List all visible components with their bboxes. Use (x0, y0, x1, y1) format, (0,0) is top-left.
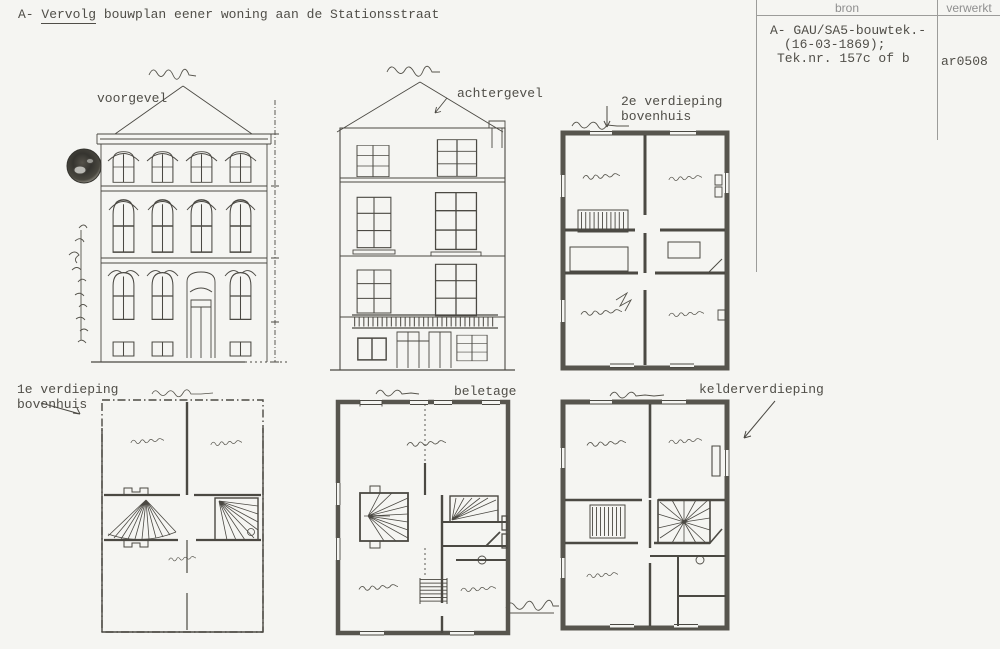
closet (570, 247, 628, 271)
sheet-title: A- Vervolg bouwplan eener woning aan de … (18, 7, 439, 22)
top-floor-windows (108, 152, 256, 183)
straight-staircase (590, 505, 625, 538)
winder-staircase (215, 498, 258, 540)
bron-entry-line3: Tek.nr. 157c of b (777, 51, 910, 66)
inner-horizontal-walls (442, 522, 506, 560)
outer-walls-solid (102, 428, 263, 632)
column-header-bron: bron (757, 1, 937, 15)
outer-walls (338, 402, 508, 633)
table-header-rule (756, 15, 1000, 16)
bron-entry-line1: A- GAU/SA5-bouwtek.- (770, 23, 926, 38)
handwritten-plan-caption (610, 392, 664, 398)
service-staircase (450, 496, 498, 522)
ground-floor-openings (358, 332, 487, 368)
label-arrow (435, 98, 447, 113)
outer-walls (563, 402, 727, 628)
title-prefix: A- (18, 7, 41, 22)
roof-gable-lines (115, 86, 252, 134)
column-header-verwerkt: verwerkt (938, 1, 1000, 15)
handwritten-plan-caption (152, 390, 213, 397)
roof-gable-lines (337, 82, 503, 132)
title-emphasized: Vervolg (41, 7, 96, 24)
handwritten-notes-column (69, 225, 88, 343)
rear-windows (353, 140, 481, 316)
entrance-door (187, 272, 215, 358)
basement-windows (113, 342, 251, 356)
plan-kelderverdieping (550, 388, 750, 643)
handwritten-achtergevel-caption (387, 66, 440, 76)
handwritten-scribble (616, 293, 631, 311)
beletage-windows-and-door (108, 271, 256, 358)
label-2e-verdieping: 2e verdieping (621, 94, 722, 109)
bron-entry-line2: (16-03-1869); (784, 37, 885, 52)
handwritten-room-labels (581, 174, 704, 317)
fixture-circle (696, 556, 704, 564)
handwritten-plan-caption (376, 390, 419, 396)
handwritten-voorgevel-caption (149, 69, 196, 79)
fan-staircase (108, 495, 176, 540)
table-left-border (756, 0, 757, 272)
plan-beletage (330, 388, 520, 643)
voorgevel-elevation-drawing (45, 60, 300, 390)
plan-1e-verdieping (88, 388, 278, 643)
achtergevel-elevation-drawing (325, 60, 520, 390)
title-rest: bouwplan eener woning aan de Stationsstr… (96, 7, 439, 22)
arrow-to-1e-verdieping-plan (38, 398, 88, 420)
winder-staircase (658, 500, 722, 543)
round-stamp (67, 149, 101, 183)
scanned-building-plan-sheet: A- Vervolg bouwplan eener woning aan de … (0, 0, 1000, 649)
second-floor-windows (109, 200, 255, 252)
plan-2e-verdieping (550, 115, 750, 380)
door-swing (708, 259, 722, 273)
wall-window-openings (336, 400, 508, 636)
wall-window-openings (561, 400, 730, 629)
corridor-fixture (668, 242, 700, 258)
table-column-divider (937, 0, 938, 140)
handwritten-plan-caption (572, 122, 629, 129)
lower-partitions (650, 556, 726, 626)
spiral-staircase (360, 486, 408, 548)
height-dimension-line (271, 100, 279, 362)
verwerkt-code: ar0508 (941, 54, 988, 69)
diagonal-wall (486, 532, 500, 546)
